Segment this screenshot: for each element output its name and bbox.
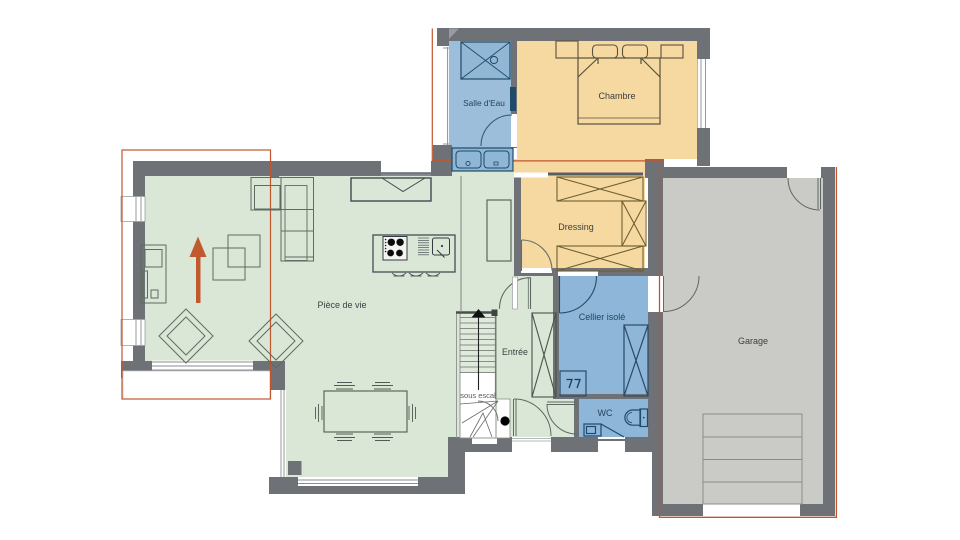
svg-text:Dressing: Dressing [558, 222, 594, 232]
svg-text:Garage: Garage [738, 336, 768, 346]
svg-text:Pièce de vie: Pièce de vie [317, 300, 366, 310]
svg-text:Cellier isolé: Cellier isolé [579, 312, 626, 322]
svg-text:sous escal: sous escal [460, 391, 496, 400]
svg-text:Chambre: Chambre [598, 91, 635, 101]
svg-text:WC: WC [598, 408, 613, 418]
svg-text:Entrée: Entrée [502, 347, 528, 357]
svg-text:Salle d'Eau: Salle d'Eau [463, 98, 505, 108]
